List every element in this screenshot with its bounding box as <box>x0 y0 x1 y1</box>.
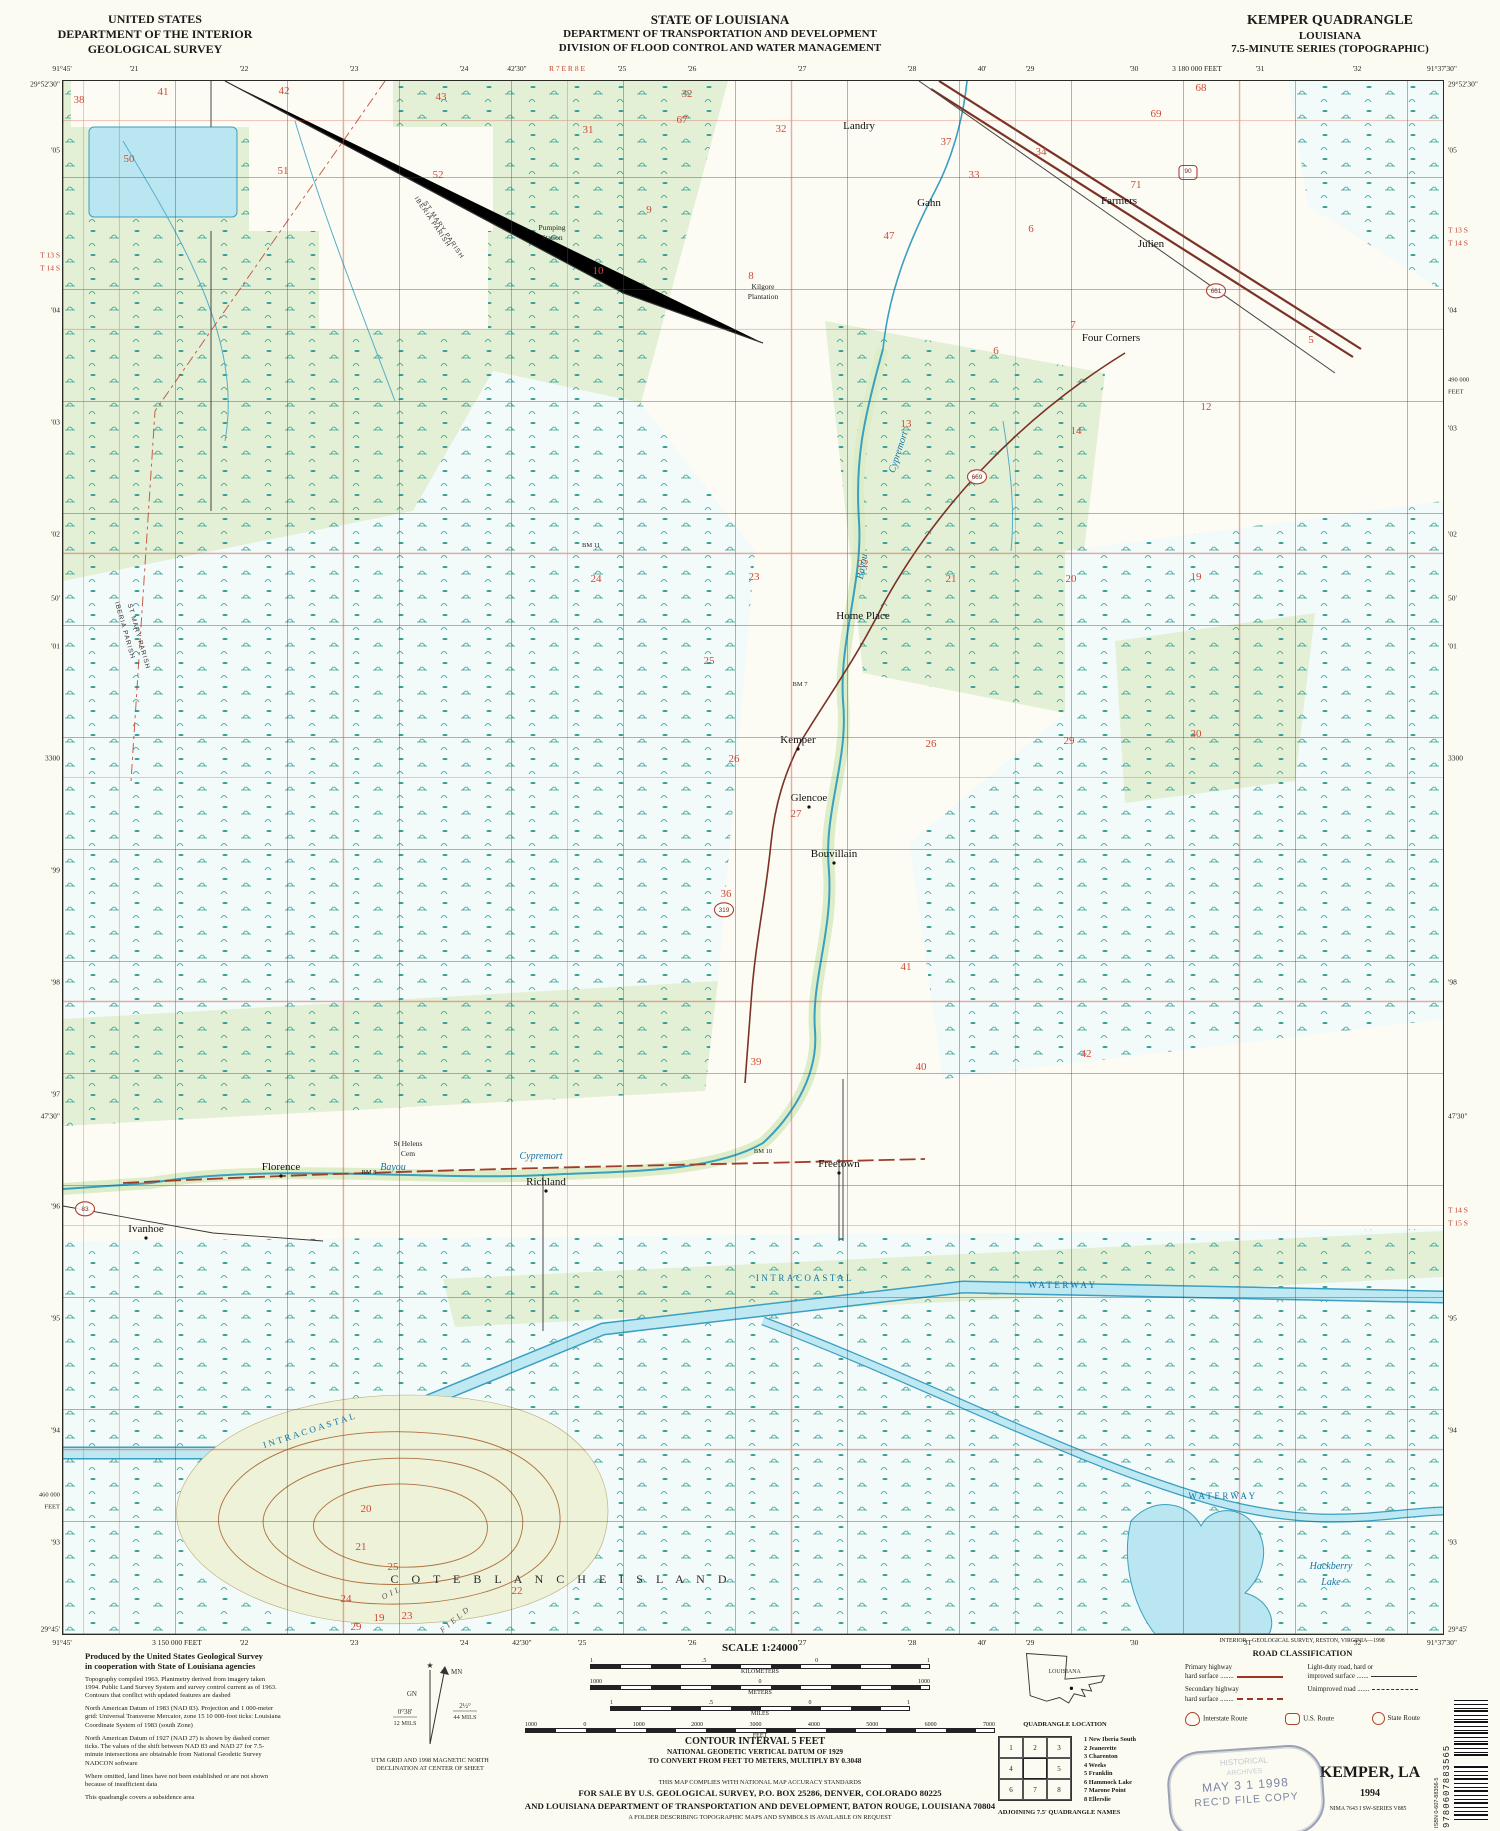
route-shield-legend-item: State Route <box>1372 1712 1420 1725</box>
adjoining-cell: 8 <box>1047 1779 1071 1800</box>
settlement-dot <box>832 861 835 864</box>
section-number: 32 <box>776 123 787 135</box>
note-paragraph: Topography compiled 1963. Planimetry der… <box>85 1676 281 1701</box>
adjoining-cell: 1 <box>999 1737 1023 1758</box>
primary-road-sample <box>1237 1676 1283 1678</box>
section-number: 33 <box>969 169 981 181</box>
section-number: 42 <box>1081 1048 1092 1060</box>
edge-tick: 47'30" <box>1448 1112 1467 1121</box>
header-line: GEOLOGICAL SURVEY <box>58 42 253 57</box>
edge-tick: T 15 S <box>1448 1219 1468 1228</box>
edge-tick: '26 <box>688 64 697 73</box>
settlement-dot <box>807 805 810 808</box>
edge-tick: '23 <box>350 1638 359 1647</box>
section-number: 50 <box>124 153 136 165</box>
map-label: Bouvillain <box>811 848 858 860</box>
section-number: 19 <box>1191 571 1203 583</box>
svg-text:12 MILS: 12 MILS <box>394 1720 417 1727</box>
svg-text:LOUISIANA: LOUISIANA <box>1049 1669 1082 1675</box>
edge-tick: '01 <box>10 642 60 651</box>
settlement-dot <box>144 1236 147 1239</box>
edge-tick: 29°52'30" <box>10 80 60 89</box>
road-classification-legend: ROAD CLASSIFICATION Primary highwayhard … <box>1185 1648 1420 1726</box>
section-number: 9 <box>646 204 652 216</box>
edge-tick: '02 <box>1448 530 1457 539</box>
map-label: Richland <box>526 1176 566 1188</box>
production-notes: Produced by the United States Geological… <box>85 1652 281 1808</box>
section-number: 43 <box>436 91 448 103</box>
map-label: WATERWAY <box>1028 1280 1097 1290</box>
map-label: Kilgore <box>752 282 776 291</box>
road-class-row: Unimproved road ....... <box>1308 1685 1421 1703</box>
note-paragraph: Where omitted, land lines have not been … <box>85 1773 281 1789</box>
edge-tick: '94 <box>1448 1426 1457 1435</box>
int-shield-icon <box>1185 1712 1200 1726</box>
declination-caption: UTM GRID AND 1998 MAGNETIC NORTH <box>360 1757 500 1765</box>
edge-tick: '29 <box>1026 1638 1035 1647</box>
map-label: Home Place <box>836 610 890 622</box>
edge-tick: '03 <box>10 418 60 427</box>
section-number: 6 <box>993 345 999 357</box>
route-number: 319 <box>719 907 730 914</box>
section-number: 32 <box>682 88 693 100</box>
section-number: 29 <box>351 1621 363 1633</box>
map-label: BM 11 <box>582 542 600 549</box>
edge-tick: 490 000 <box>1448 377 1469 384</box>
section-number: 34 <box>1036 146 1048 158</box>
edge-tick: 50' <box>1448 594 1457 603</box>
map-label: Bayou <box>380 1162 406 1173</box>
section-number: 5 <box>1308 334 1314 346</box>
section-number: 30 <box>1191 728 1203 740</box>
svg-text:★: ★ <box>426 1661 433 1670</box>
section-number: 14 <box>1071 425 1083 437</box>
svg-text:44 MILS: 44 MILS <box>454 1714 477 1721</box>
header-line: STATE OF LOUISIANA <box>559 12 882 28</box>
section-number: 71 <box>1131 179 1142 191</box>
edge-tick: '03 <box>1448 424 1457 433</box>
edge-tick: '98 <box>1448 978 1457 987</box>
section-number: 22 <box>512 1585 523 1597</box>
edge-tick: '31 <box>1256 64 1265 73</box>
landcover-layer <box>63 81 1443 1634</box>
route-number: 669 <box>972 474 983 481</box>
adjoining-grid: 12345678 <box>998 1736 1072 1801</box>
barcode-number: 9780607883565 <box>1442 1700 1452 1828</box>
road-class-row: Primary highwayhard surface ........ <box>1185 1663 1298 1681</box>
map-credit: INTERIOR—GEOLOGICAL SURVEY, RESTON, VIRG… <box>1219 1638 1384 1644</box>
edge-tick: '01 <box>1448 642 1457 651</box>
edge-tick: '05 <box>1448 146 1457 155</box>
map-label: Florence <box>262 1161 301 1173</box>
map-label: Lake <box>1320 1577 1341 1588</box>
edge-tick: '28 <box>908 64 917 73</box>
st-shield-icon <box>1372 1712 1385 1725</box>
section-number: 23 <box>749 571 761 583</box>
edge-tick: '23 <box>350 64 359 73</box>
map-label: Cem <box>401 1149 415 1158</box>
edge-tick: 42'30" <box>507 64 526 73</box>
section-number: 36 <box>721 888 733 900</box>
sale-note: THIS MAP COMPLIES WITH NATIONAL MAP ACCU… <box>470 1778 1050 1822</box>
edge-tick: 47'30" <box>10 1112 60 1121</box>
edge-tick: '22 <box>240 1638 249 1647</box>
section-number: 29 <box>1064 735 1076 747</box>
map-label: C O T E B L A N C H E I S L A N D <box>390 1572 731 1586</box>
scale-block: SCALE 1:24000 1.501KILOMETERS100001000ME… <box>520 1642 1000 1743</box>
section-number: 51 <box>278 165 289 177</box>
section-number: 41 <box>158 86 169 98</box>
section-number: 37 <box>941 136 953 148</box>
section-number: 26 <box>926 738 938 750</box>
edge-tick: T 13 S <box>1448 226 1468 235</box>
edge-tick: '22 <box>240 64 249 73</box>
section-number: 68 <box>1196 82 1208 94</box>
secondary-road-sample <box>1237 1698 1283 1700</box>
edge-tick: '27 <box>798 64 807 73</box>
edge-tick: '95 <box>1448 1314 1457 1323</box>
road-class-row: Secondary highwayhard surface ........ <box>1185 1685 1298 1703</box>
section-number: 10 <box>593 265 605 277</box>
quad-series: 7.5-MINUTE SERIES (TOPOGRAPHIC) <box>1231 43 1429 57</box>
edge-tick: 91°45' <box>52 64 71 73</box>
edge-tick: '24 <box>460 1638 469 1647</box>
map-label: Freetown <box>818 1158 860 1170</box>
edge-tick: '95 <box>10 1314 60 1323</box>
section-number: 24 <box>341 1593 353 1605</box>
section-number: 52 <box>433 169 444 181</box>
svg-text:2½°: 2½° <box>459 1702 471 1710</box>
route-shield-legend-item: U.S. Route <box>1285 1713 1334 1725</box>
section-number: 13 <box>901 418 913 430</box>
header-line: UNITED STATES <box>58 12 253 27</box>
section-number: 31 <box>583 124 594 136</box>
route-number: 90 <box>1184 168 1192 175</box>
edge-tick: '21 <box>130 64 139 73</box>
map-label: BM 10 <box>754 1148 772 1155</box>
sheet-year: 1994 <box>1320 1788 1420 1799</box>
quad-title: KEMPER QUADRANGLE <box>1231 12 1429 30</box>
barcode: 9780607883565 ISBN 0-607-88356-5 <box>1430 1700 1488 1828</box>
edge-tick: FEET <box>10 1504 60 1511</box>
section-number: 42 <box>279 85 290 97</box>
adjoining-cell: 3 <box>1047 1737 1071 1758</box>
header-line: DIVISION OF FLOOD CONTROL AND WATER MANA… <box>559 42 882 56</box>
map-label: Farmers <box>1101 195 1137 207</box>
settlement-dot <box>279 1174 282 1177</box>
note-paragraph: North American Datum of 1983 (NAD 83). P… <box>85 1705 281 1730</box>
section-number: 27 <box>791 808 803 820</box>
edge-tick: '30 <box>1130 1638 1139 1647</box>
edge-tick: '93 <box>1448 1538 1457 1547</box>
topo-map-sheet: UNITED STATES DEPARTMENT OF THE INTERIOR… <box>0 0 1500 1831</box>
header-line: DEPARTMENT OF TRANSPORTATION AND DEVELOP… <box>559 28 882 42</box>
svg-text:MN: MN <box>451 1668 462 1676</box>
map-label: Kemper <box>780 734 816 746</box>
section-number: 67 <box>677 114 689 126</box>
map-label: Pumping <box>538 223 565 232</box>
edge-tick: 29°45' <box>1448 1625 1467 1634</box>
scale-bar: 1.501KILOMETERS <box>590 1658 930 1676</box>
map-label: Glencoe <box>791 792 828 804</box>
us-shield-icon <box>1285 1713 1300 1725</box>
edge-tick: 91°37'30" <box>1427 64 1457 73</box>
adjoining-cell: 7 <box>1023 1779 1047 1800</box>
light-road-sample <box>1371 1676 1417 1677</box>
map-label: WATERWAY <box>1188 1491 1257 1501</box>
edge-tick: 91°45' <box>52 1638 71 1647</box>
reservoir <box>89 127 237 217</box>
edge-tick: 3300 <box>1448 754 1463 763</box>
map-label: Gahn <box>917 197 941 209</box>
barcode-isbn: ISBN 0-607-88356-5 <box>1434 1700 1440 1828</box>
adjoining-cell <box>1023 1758 1047 1779</box>
produced-by: Produced by the United States Geological… <box>85 1652 281 1672</box>
edge-tick: T 14 S <box>1448 1206 1468 1215</box>
edge-tick: '97 <box>10 1090 60 1099</box>
header-line: DEPARTMENT OF THE INTERIOR <box>58 27 253 42</box>
map-label: BM 7 <box>793 681 809 688</box>
quad-location-dot <box>1070 1687 1073 1690</box>
section-number: 25 <box>704 655 716 667</box>
section-number: 69 <box>1151 108 1163 120</box>
adjoining-cell: 6 <box>999 1779 1023 1800</box>
edge-tick: '98 <box>10 978 60 987</box>
edge-tick: 3 150 000 FEET <box>152 1638 202 1647</box>
section-number: 6 <box>1028 223 1034 235</box>
note-paragraph: North American Datum of 1927 (NAD 27) is… <box>85 1735 281 1768</box>
map-label: Julien <box>1138 238 1165 250</box>
section-number: 39 <box>751 1056 763 1068</box>
map-label: Hackberry <box>1309 1561 1353 1572</box>
section-number: 20 <box>1066 573 1078 585</box>
adjoining-cell: 4 <box>999 1758 1023 1779</box>
section-number: 40 <box>916 1061 928 1073</box>
edge-tick: 29°52'30" <box>1448 80 1478 89</box>
received-stamp: HISTORICAL ARCHIVES MAY 3 1 1998 REC'D F… <box>1165 1743 1327 1831</box>
section-number: 7 <box>1070 319 1076 331</box>
edge-tick: 91°37'30" <box>1427 1638 1457 1647</box>
section-number: 8 <box>748 270 754 282</box>
scale-title: SCALE 1:24000 <box>520 1642 1000 1654</box>
sheet-name: KEMPER, LA <box>1320 1764 1420 1782</box>
edge-tick: FEET <box>1448 389 1464 396</box>
edge-tick: '24 <box>460 64 469 73</box>
edge-tick: 3 180 000 FEET <box>1172 64 1222 73</box>
edge-tick: 3300 <box>10 754 60 763</box>
section-number: 21 <box>946 573 957 585</box>
route-shield-legend-item: Interstate Route <box>1185 1712 1248 1726</box>
map-label: Cypremort <box>520 1151 563 1162</box>
section-number: 20 <box>361 1503 373 1515</box>
map-label: INTRACOASTAL <box>756 1273 854 1283</box>
edge-tick: 460 000 <box>10 1492 60 1499</box>
section-number: 47 <box>884 230 896 242</box>
louisiana-outline: LOUISIANA <box>1017 1648 1113 1714</box>
section-number: 26 <box>729 753 741 765</box>
declination-diagram: ★ GN MN 0°38' 12 MILS 2½° 44 MILS UTM GR… <box>360 1658 500 1773</box>
map-graphics: 9066166983319 38414243313267323733346968… <box>63 81 1443 1634</box>
edge-tick: '99 <box>10 866 60 875</box>
hackberry-lake <box>1127 1505 1271 1634</box>
edge-tick: 29°45' <box>10 1625 60 1634</box>
section-number: 24 <box>591 573 603 585</box>
section-number: 19 <box>374 1612 386 1624</box>
map-label: Plantation <box>748 292 779 301</box>
edge-tick: '04 <box>10 306 60 315</box>
scale-bar: 1.501MILES <box>610 1700 910 1718</box>
edge-tick: '04 <box>1448 306 1457 315</box>
svg-text:GN: GN <box>407 1690 417 1698</box>
edge-tick: 50' <box>10 594 60 603</box>
svg-text:0°38': 0°38' <box>398 1708 413 1716</box>
adjoining-cell: 5 <box>1047 1758 1071 1779</box>
edge-tick: R 7 E R 8 E <box>549 64 585 73</box>
route-number: 661 <box>1211 288 1222 295</box>
map-label: Ivanhoe <box>128 1223 164 1235</box>
sheet-title-block: KEMPER, LA 1994 <box>1320 1764 1420 1799</box>
section-number: 21 <box>356 1541 367 1553</box>
map-label: St Helens <box>394 1139 423 1148</box>
edge-tick: 40' <box>978 64 987 73</box>
edge-tick: T 13 S <box>10 251 60 260</box>
map-label: BM 8 <box>362 1169 377 1176</box>
note-paragraph: This quadrangle covers a subsidence area <box>85 1794 281 1802</box>
header-agency: UNITED STATES DEPARTMENT OF THE INTERIOR… <box>58 12 253 57</box>
adjoining-name: 1 New Iberia South <box>1084 1736 1298 1745</box>
section-number: 41 <box>901 961 912 973</box>
adjoining-cell: 2 <box>1023 1737 1047 1758</box>
edge-tick: '29 <box>1026 64 1035 73</box>
edge-tick: '96 <box>10 1202 60 1211</box>
map-label: Landry <box>843 120 875 132</box>
edge-tick: '30 <box>1130 64 1139 73</box>
section-number: 38 <box>74 94 86 106</box>
section-number: 23 <box>402 1610 414 1622</box>
barcode-bars <box>1454 1764 1488 1820</box>
route-number: 83 <box>81 1206 89 1213</box>
edge-tick: '32 <box>1353 64 1362 73</box>
header-quadrangle: KEMPER QUADRANGLE LOUISIANA 7.5-MINUTE S… <box>1231 12 1429 57</box>
edge-tick: '25 <box>618 64 627 73</box>
map-label: Four Corners <box>1082 332 1140 344</box>
scale-bar: 100001000METERS <box>590 1679 930 1697</box>
map-canvas: 9066166983319 38414243313267323733346968… <box>62 80 1444 1635</box>
edge-tick: T 14 S <box>10 264 60 273</box>
settlement-dot <box>837 1171 840 1174</box>
edge-tick: '05 <box>10 146 60 155</box>
quad-state: LOUISIANA <box>1231 30 1429 44</box>
series-number: NIMA 7643 I SW-SERIES V885 <box>1330 1806 1407 1812</box>
edge-tick: T 14 S <box>1448 239 1468 248</box>
edge-tick: '02 <box>10 530 60 539</box>
road-class-row: Light-duty road, hard orimproved surface… <box>1308 1663 1421 1681</box>
unimproved-road-sample <box>1372 1689 1418 1690</box>
quadrangle-location: LOUISIANA QUADRANGLE LOCATION <box>1010 1648 1120 1728</box>
edge-tick: '94 <box>10 1426 60 1435</box>
settlement-dot <box>796 747 799 750</box>
barcode-bars <box>1454 1700 1488 1756</box>
contour-note: CONTOUR INTERVAL 5 FEET NATIONAL GEODETI… <box>520 1736 990 1765</box>
edge-tick: '93 <box>10 1538 60 1547</box>
map-label: Station <box>541 233 563 242</box>
settlement-dot <box>544 1189 547 1192</box>
section-number: 12 <box>1201 401 1212 413</box>
header-state: STATE OF LOUISIANA DEPARTMENT OF TRANSPO… <box>559 12 882 56</box>
